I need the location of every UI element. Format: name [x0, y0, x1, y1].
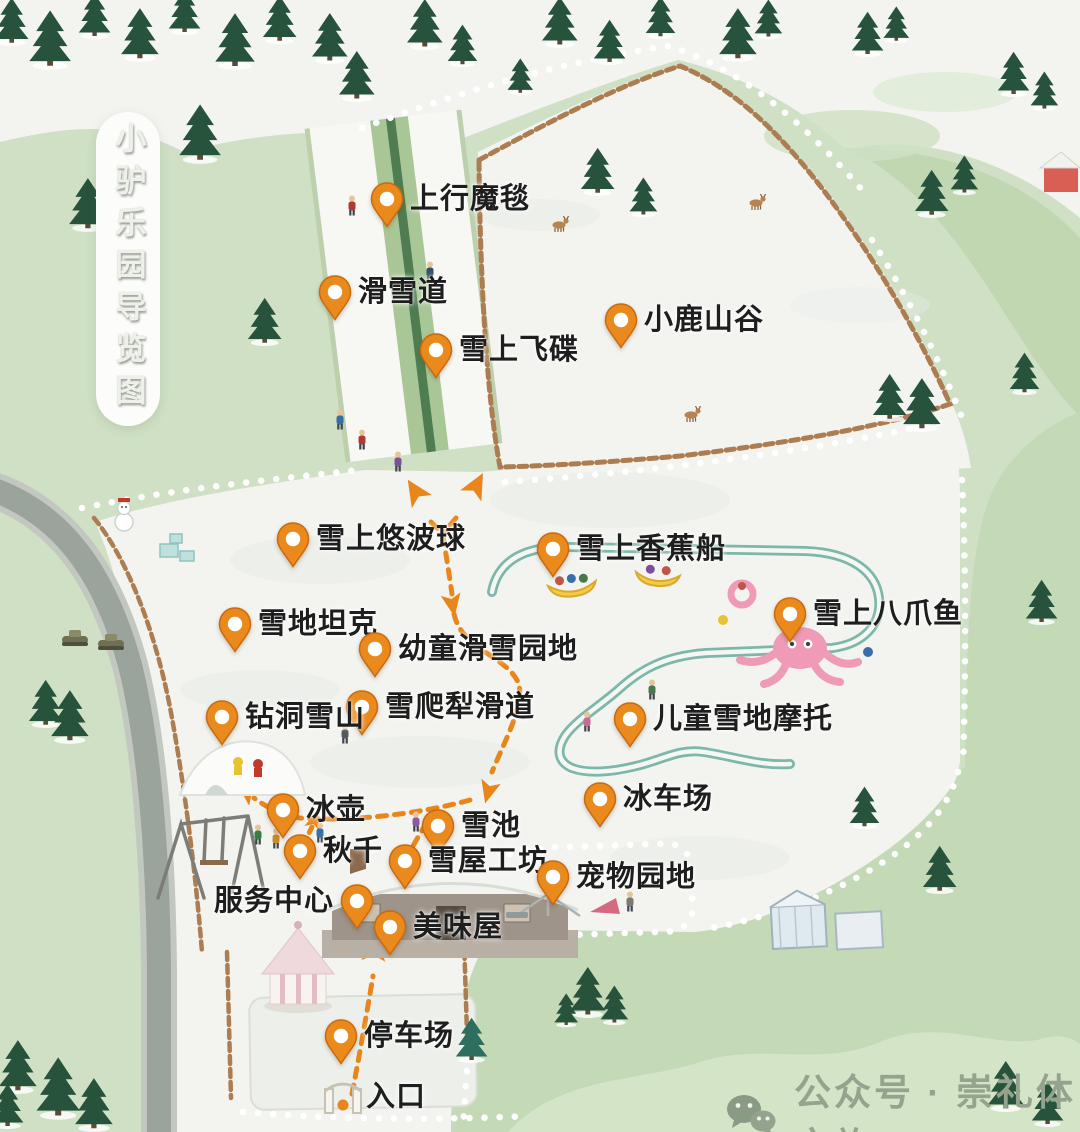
map-pin-icon[interactable]: [604, 303, 638, 349]
map-pin-icon[interactable]: [218, 607, 252, 653]
map-pin-icon[interactable]: [773, 597, 807, 643]
map-pin-icon[interactable]: [340, 884, 374, 930]
map-title-pill: 小驴乐园导览图: [96, 112, 160, 426]
valley-grass-patch: [764, 110, 940, 162]
entrance-gate-icon[interactable]: [321, 1081, 365, 1115]
poi-label: 钻洞雪山: [245, 697, 365, 737]
map-pin-icon[interactable]: [583, 782, 617, 828]
map-pin-icon[interactable]: [358, 632, 392, 678]
map-pin-icon[interactable]: [205, 700, 239, 746]
poi-label: 冰壶: [306, 790, 366, 830]
map-pin-icon[interactable]: [324, 1019, 358, 1065]
map-pin-icon[interactable]: [283, 834, 317, 880]
map-pin-icon[interactable]: [318, 275, 352, 321]
map-pin-icon[interactable]: [276, 522, 310, 568]
poi-label: 儿童雪地摩托: [653, 699, 833, 739]
poi-label: 雪池: [461, 806, 521, 846]
poi-label: 雪上香蕉船: [576, 529, 726, 569]
corner-grass-wash: [873, 72, 1017, 112]
poi-label: 秋千: [323, 831, 383, 871]
poi-label: 雪上悠波球: [316, 519, 466, 559]
watermark-text: 公众号 · 崇礼体文旅: [794, 1062, 1080, 1132]
poi-label: 入口: [366, 1077, 426, 1117]
map-pin-icon[interactable]: [373, 910, 407, 956]
wechat-icon: [722, 1092, 780, 1132]
map-pin-icon[interactable]: [613, 702, 647, 748]
watermark: 公众号 · 崇礼体文旅: [722, 1062, 1080, 1132]
poi-label: 冰车场: [623, 779, 713, 819]
poi-label: 雪上八爪鱼: [813, 594, 963, 634]
poi-label: 美味屋: [413, 907, 503, 947]
poi-label: 雪爬犁滑道: [385, 687, 535, 727]
map-pin-icon[interactable]: [370, 182, 404, 228]
poi-label: 雪上飞碟: [459, 330, 579, 370]
poi-label: 服务中心: [214, 881, 334, 921]
poi-label: 滑雪道: [358, 272, 448, 312]
poi-label: 小鹿山谷: [644, 300, 764, 340]
park-map: 上行魔毯 滑雪道 雪上飞碟: [0, 0, 1080, 1132]
poi-label: 停车场: [364, 1016, 454, 1056]
poi-label: 幼童滑雪园地: [398, 629, 578, 669]
map-pin-icon[interactable]: [536, 532, 570, 578]
map-pin-icon[interactable]: [266, 793, 300, 839]
poi-label: 宠物园地: [576, 857, 696, 897]
map-pin-icon[interactable]: [419, 333, 453, 379]
poi-label: 雪屋工坊: [428, 841, 548, 881]
map-pin-icon[interactable]: [388, 844, 422, 890]
map-pin-icon[interactable]: [536, 860, 570, 906]
map-title: 小驴乐园导览图: [106, 122, 151, 416]
poi-label: 上行魔毯: [410, 179, 530, 219]
